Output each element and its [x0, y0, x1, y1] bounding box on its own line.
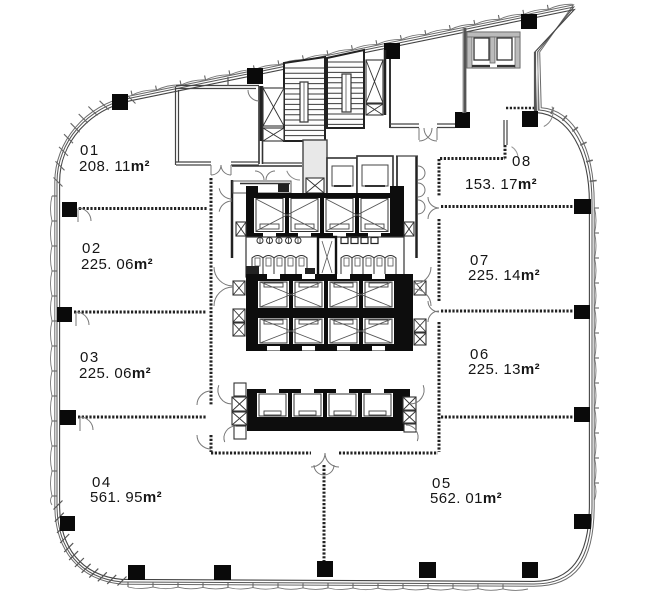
svg-text:03: 03 [80, 349, 100, 366]
svg-text:02: 02 [82, 240, 102, 257]
svg-text:225. 13m²: 225. 13m² [468, 361, 540, 378]
svg-text:08: 08 [512, 153, 532, 170]
svg-text:562. 01m²: 562. 01m² [430, 490, 502, 507]
svg-text:153. 17m²: 153. 17m² [465, 176, 537, 193]
svg-text:225. 06m²: 225. 06m² [79, 365, 151, 382]
svg-text:01: 01 [80, 142, 100, 159]
svg-text:208. 11m²: 208. 11m² [79, 158, 150, 175]
svg-text:225. 06m²: 225. 06m² [81, 256, 153, 273]
svg-text:561. 95m²: 561. 95m² [90, 489, 162, 506]
svg-text:225. 14m²: 225. 14m² [468, 267, 540, 284]
